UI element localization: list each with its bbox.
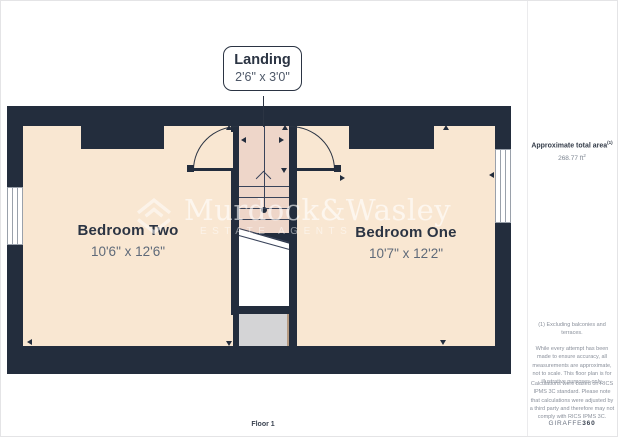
disclaimer-calculations: Calculations were based on RICS IPMS 3C … xyxy=(529,380,615,421)
wall-segment xyxy=(289,169,297,315)
floor-label: Floor 1 xyxy=(223,421,303,428)
giraffe360-logo-suffix: 360 xyxy=(582,420,595,427)
landing-callout-dimensions: 2'6" x 3'0" xyxy=(226,70,299,84)
measure-arrow-icon xyxy=(489,172,494,178)
total-area-value-text: 268.77 ft xyxy=(558,155,583,162)
measure-arrow-icon xyxy=(440,340,446,345)
sidebar-divider xyxy=(527,1,528,437)
room-name: Bedroom One xyxy=(326,224,486,241)
measure-arrow-icon xyxy=(340,175,345,181)
total-area-heading-note: (1) xyxy=(607,140,613,145)
room-dimensions: 10'7" x 12'2" xyxy=(326,246,486,261)
door-leaf-bedroom-one xyxy=(290,168,337,171)
measure-arrow-icon xyxy=(443,125,449,130)
window-mullion xyxy=(12,188,13,244)
room-name: Bedroom Two xyxy=(48,222,208,239)
measure-arrow-icon xyxy=(281,168,287,173)
bedroom-one-label: Bedroom One 10'7" x 12'2" xyxy=(326,224,486,261)
stair-tread xyxy=(239,219,289,220)
total-area-heading: Approximate total area(1) xyxy=(529,140,615,149)
wall-segment xyxy=(81,126,164,149)
bedroom-two-label: Bedroom Two 10'6" x 12'6" xyxy=(48,222,208,259)
measure-arrow-icon xyxy=(226,341,232,346)
wall-segment xyxy=(231,169,239,315)
giraffe360-logo: GIRAFFE360 xyxy=(529,420,615,427)
measure-arrow-icon xyxy=(226,125,232,130)
window-mullion xyxy=(500,150,501,222)
under-stairs-cupboard xyxy=(239,314,289,346)
measure-arrow-icon xyxy=(279,137,284,143)
total-area-value-sup: 2 xyxy=(583,153,586,158)
door-stop-block xyxy=(187,165,194,172)
door-leaf-bedroom-two xyxy=(192,168,239,171)
floorplan-page: Bedroom Two 10'6" x 12'6" Bedroom One 10… xyxy=(0,0,618,437)
total-area-heading-text: Approximate total area xyxy=(531,142,607,149)
area-footnote: (1) Excluding balconies and terraces. xyxy=(529,321,615,338)
window-bedroom-two xyxy=(7,187,23,245)
total-area-value: 268.77 ft2 xyxy=(529,153,615,162)
total-area-block: Approximate total area(1) 268.77 ft2 xyxy=(529,140,615,162)
wall-segment xyxy=(349,126,434,149)
stair-tread xyxy=(239,197,289,198)
wall-segment xyxy=(231,306,297,314)
measure-arrow-icon xyxy=(282,125,288,130)
door-stop-block xyxy=(334,165,341,172)
measure-arrow-icon xyxy=(27,339,32,345)
window-mullion xyxy=(505,150,506,222)
window-mullion xyxy=(17,188,18,244)
callout-leader-line xyxy=(263,96,265,127)
measure-arrow-icon xyxy=(241,137,246,143)
landing-callout-title: Landing xyxy=(226,52,299,68)
stair-tread xyxy=(239,208,289,209)
window-bedroom-one xyxy=(495,149,511,223)
cupboard-door-line xyxy=(287,314,289,346)
room-dimensions: 10'6" x 12'6" xyxy=(48,244,208,259)
giraffe360-logo-name: GIRAFFE xyxy=(548,420,582,427)
stair-tread xyxy=(239,186,289,187)
landing-callout: Landing 2'6" x 3'0" xyxy=(223,46,302,91)
